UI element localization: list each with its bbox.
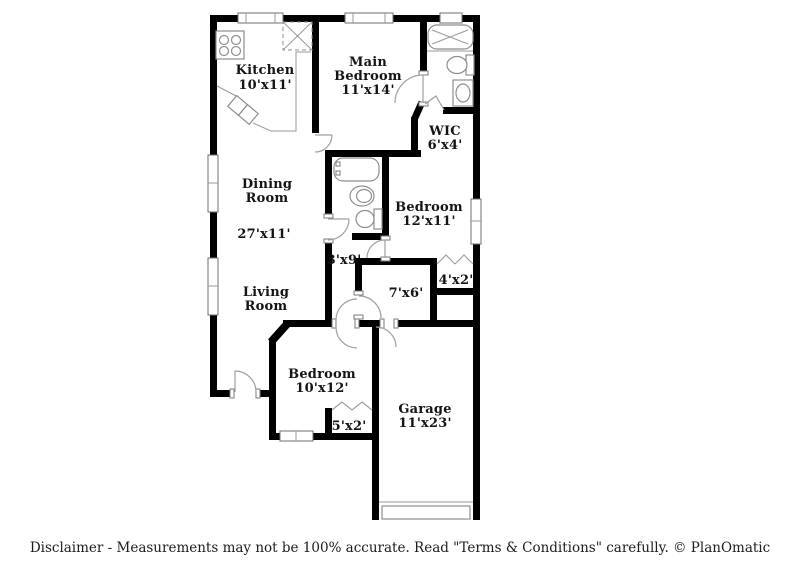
label-kitchen-name: Kitchen (236, 63, 295, 78)
window-kitchen (238, 13, 283, 23)
label-living-line2: Room (245, 299, 288, 314)
bedroom3-door (336, 327, 357, 348)
label-garage-name: Garage (398, 402, 451, 417)
main-vanity-sink-icon (453, 80, 473, 106)
bath2-toilet-icon (356, 209, 382, 229)
kitchen-sink-icon (228, 96, 258, 125)
window-bedroom3 (280, 431, 313, 441)
closet4x2-bifold-door-icon (437, 255, 473, 264)
wall-kitchen-bedroom (312, 22, 319, 133)
stove-icon (216, 31, 244, 59)
bath2-tub-icon (334, 158, 379, 181)
bath2-door (328, 219, 349, 240)
wall-nexus-b (357, 320, 382, 327)
label-living-line1: Living (243, 285, 289, 300)
wall-hall-left-upper (325, 157, 332, 218)
label-bedroom2-name: Bedroom (395, 200, 463, 215)
garage-door (379, 502, 473, 519)
main-toilet-icon (447, 55, 474, 75)
label-mainbed-line1: Main (349, 55, 387, 70)
label-wic-name: WIC (428, 124, 461, 139)
wall-bedroom2-bottom (355, 258, 437, 265)
wall-garage-left (372, 327, 379, 520)
wall-outer-right (473, 15, 480, 520)
bedroom2-door (367, 240, 385, 258)
wall-mainbed-bottom (325, 150, 421, 157)
label-bedroom3-size: 10'x12' (295, 381, 348, 396)
pantry-icon (283, 22, 312, 50)
wall-bath2-bedroom2 (382, 157, 389, 240)
wall-nexus-a (283, 320, 335, 327)
label-dining-size: 27'x11' (237, 227, 290, 242)
label-dining-line2: Room (246, 191, 289, 206)
label-utility-size: 7'x6' (389, 286, 424, 301)
wall-mainbed-bath (420, 22, 427, 75)
wall-wic-left (411, 117, 418, 157)
label-bedroom2-size: 12'x11' (402, 214, 455, 229)
label-hall-size: 3'x9' (327, 253, 362, 268)
window-living (208, 258, 218, 315)
label-kitchen-size: 10'x11' (238, 78, 291, 93)
wall-closet4x2-bottom (430, 288, 480, 295)
label-bedroom3-name: Bedroom (288, 367, 356, 382)
window-main-bath (440, 13, 462, 23)
wall-bedroom3-left (269, 338, 276, 440)
wall-garage-top (396, 320, 480, 327)
window-main-bedroom (345, 13, 393, 23)
main-bedroom-door (315, 135, 332, 152)
label-mainbed-line2: Bedroom (334, 69, 402, 84)
floor-plan-drawing: Kitchen 10'x11' Main Bedroom 11'x14' WIC… (0, 0, 800, 582)
disclaimer-text: Disclaimer - Measurements may not be 100… (30, 540, 770, 556)
label-dining-line1: Dining (242, 177, 292, 192)
wall-bath-wic-divider (443, 107, 480, 114)
window-bedroom2 (471, 199, 481, 244)
floor-plan-page: Kitchen 10'x11' Main Bedroom 11'x14' WIC… (0, 0, 800, 582)
window-dining (208, 155, 218, 212)
label-mainbed-size: 11'x14' (341, 83, 394, 98)
label-closet5x2-size: 5'x2' (332, 419, 367, 434)
closet5x2-bifold-door-icon (332, 402, 372, 410)
bath2-sink-icon (350, 186, 374, 206)
label-closet4x2-size: 4'x2' (439, 273, 474, 288)
label-wic-size: 6'x4' (428, 138, 463, 153)
main-bathtub-icon (427, 25, 473, 51)
front-door (235, 371, 256, 392)
label-garage-size: 11'x23' (398, 416, 451, 431)
wall-bedroom3-angle (271, 323, 288, 342)
